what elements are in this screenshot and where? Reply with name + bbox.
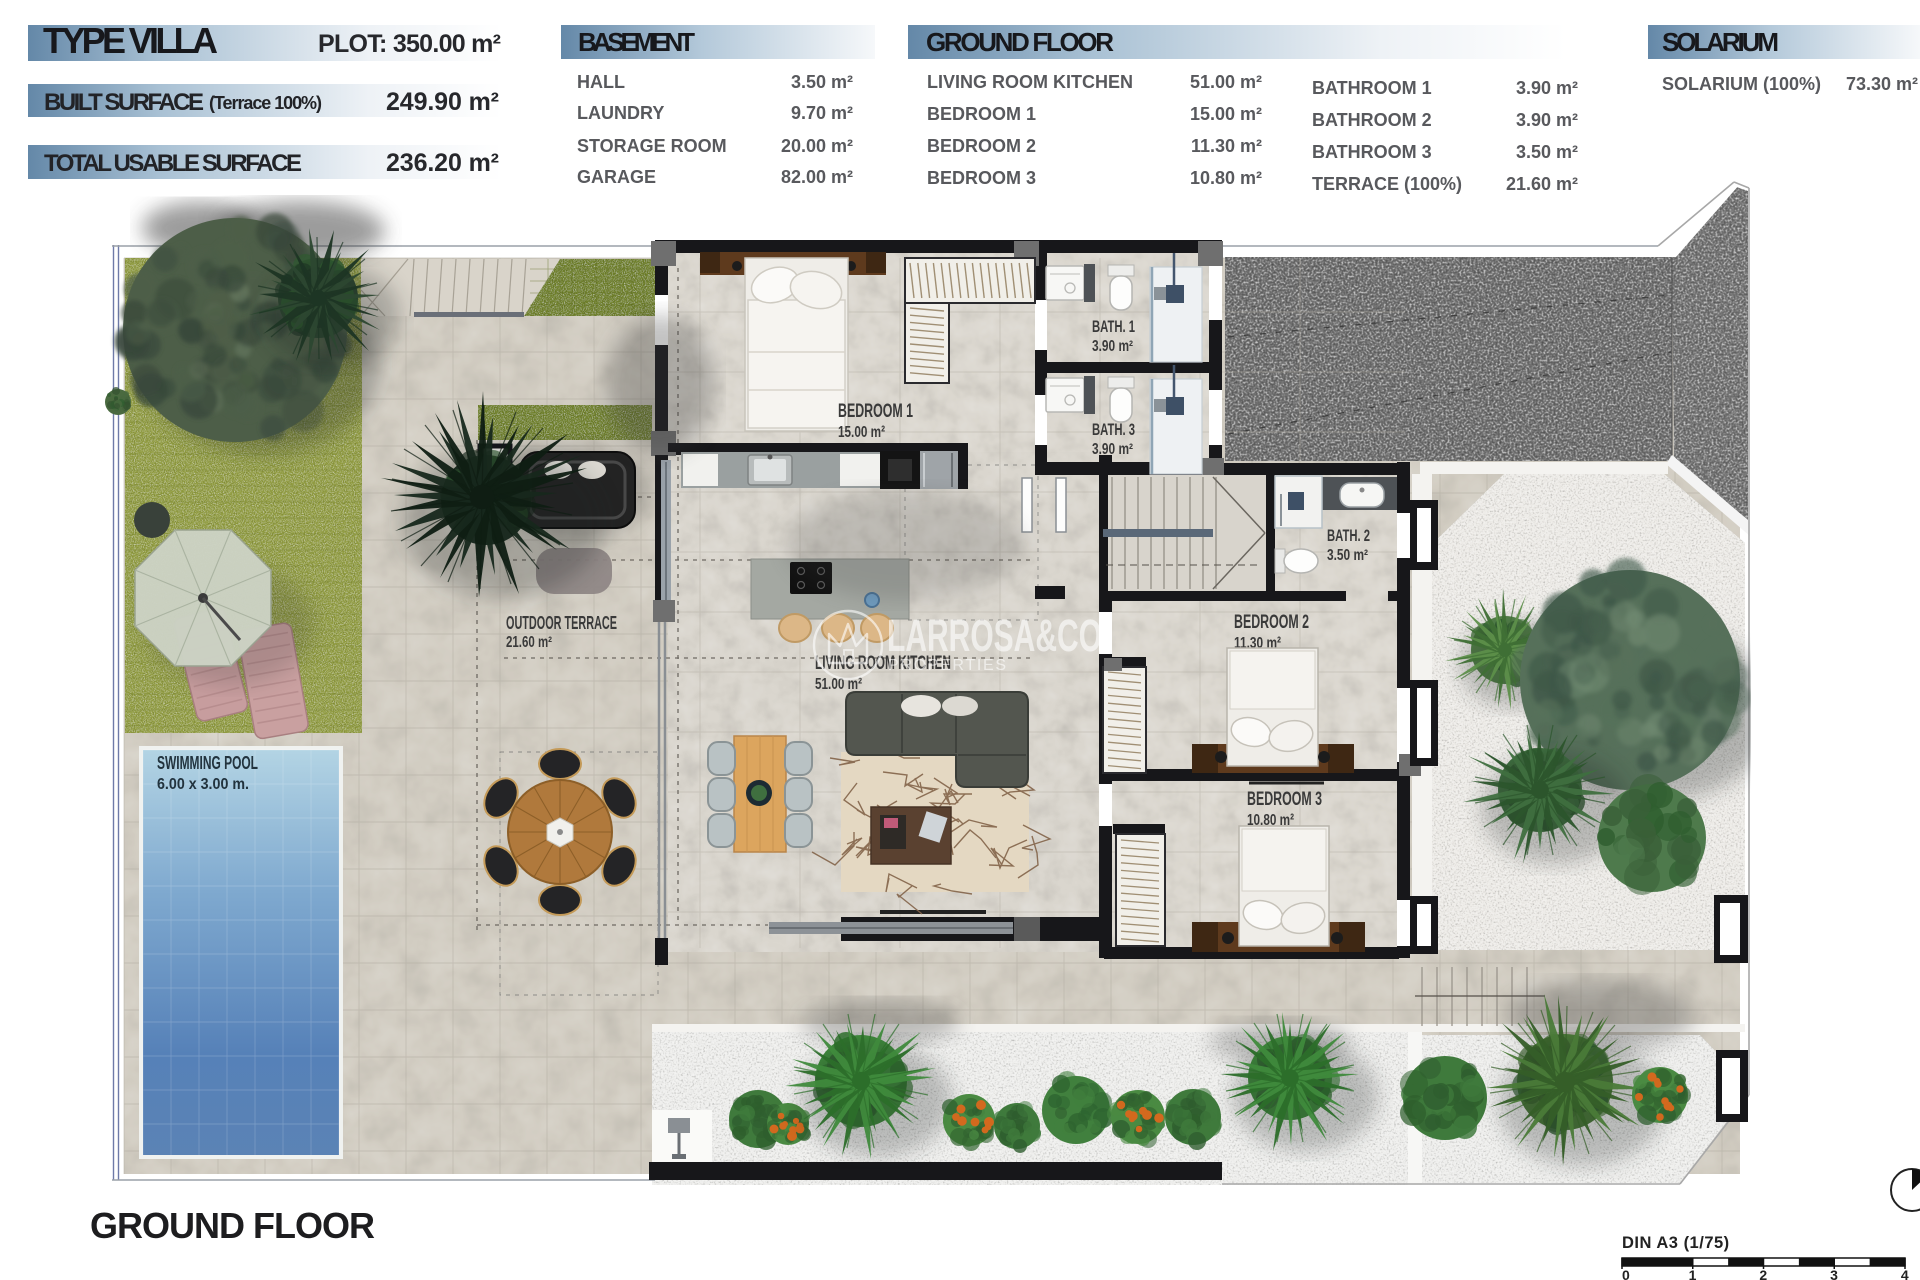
svg-text:3.50 m²: 3.50 m² bbox=[1516, 142, 1578, 162]
svg-text:4: 4 bbox=[1901, 1267, 1909, 1280]
svg-text:BATHROOM 1: BATHROOM 1 bbox=[1312, 78, 1432, 98]
svg-text:LAUNDRY: LAUNDRY bbox=[577, 103, 664, 123]
svg-text:3.50 m²: 3.50 m² bbox=[791, 72, 853, 92]
svg-text:15.00 m²: 15.00 m² bbox=[1190, 104, 1262, 124]
svg-text:3.50 m²: 3.50 m² bbox=[1327, 547, 1368, 564]
svg-text:OUTDOOR TERRACE: OUTDOOR TERRACE bbox=[506, 613, 617, 633]
svg-text:TERRACE (100%): TERRACE (100%) bbox=[1312, 174, 1462, 194]
svg-text:21.60 m²: 21.60 m² bbox=[1506, 174, 1578, 194]
svg-text:21.60 m²: 21.60 m² bbox=[506, 634, 552, 651]
svg-text:GARAGE: GARAGE bbox=[577, 167, 656, 187]
svg-text:PLOT: 350.00 m²: PLOT: 350.00 m² bbox=[318, 30, 501, 58]
svg-text:10.80 m²: 10.80 m² bbox=[1190, 168, 1262, 188]
svg-text:3.90 m²: 3.90 m² bbox=[1516, 110, 1578, 130]
svg-text:STORAGE ROOM: STORAGE ROOM bbox=[577, 136, 727, 156]
svg-text:BEDROOM 2: BEDROOM 2 bbox=[927, 136, 1036, 156]
svg-text:HALL: HALL bbox=[577, 72, 625, 92]
svg-text:BATH. 3: BATH. 3 bbox=[1092, 420, 1135, 439]
svg-text:BUILT SURFACE: BUILT SURFACE bbox=[44, 89, 204, 116]
svg-text:BATH. 2: BATH. 2 bbox=[1327, 526, 1370, 545]
svg-text:TYPE VILLA: TYPE VILLA bbox=[43, 20, 218, 61]
svg-text:BATH. 1: BATH. 1 bbox=[1092, 317, 1135, 336]
svg-text:SOLARIUM: SOLARIUM bbox=[1662, 27, 1779, 57]
svg-text:SOLARIUM (100%): SOLARIUM (100%) bbox=[1662, 74, 1821, 94]
svg-text:2: 2 bbox=[1759, 1267, 1767, 1280]
svg-text:DIN A3 (1/75): DIN A3 (1/75) bbox=[1622, 1234, 1730, 1252]
svg-text:BATHROOM 3: BATHROOM 3 bbox=[1312, 142, 1432, 162]
svg-text:3.90 m²: 3.90 m² bbox=[1092, 338, 1133, 355]
svg-text:(Terrace 100%): (Terrace 100%) bbox=[209, 93, 322, 113]
svg-text:3.90 m²: 3.90 m² bbox=[1516, 78, 1578, 98]
svg-text:BEDROOM 1: BEDROOM 1 bbox=[927, 104, 1036, 124]
svg-text:15.00 m²: 15.00 m² bbox=[838, 424, 885, 441]
svg-text:3.90 m²: 3.90 m² bbox=[1092, 441, 1133, 458]
svg-text:249.90 m²: 249.90 m² bbox=[386, 88, 499, 116]
svg-text:BEDROOM 1: BEDROOM 1 bbox=[838, 401, 913, 422]
svg-text:0: 0 bbox=[1622, 1267, 1630, 1280]
svg-text:20.00 m²: 20.00 m² bbox=[781, 136, 853, 156]
svg-text:TOTAL USABLE SURFACE: TOTAL USABLE SURFACE bbox=[44, 150, 302, 177]
svg-text:BEDROOM 3: BEDROOM 3 bbox=[1247, 789, 1322, 810]
svg-text:LIVING ROOM KITCHEN: LIVING ROOM KITCHEN bbox=[927, 72, 1133, 92]
svg-text:11.30 m²: 11.30 m² bbox=[1191, 136, 1262, 156]
svg-text:3: 3 bbox=[1830, 1267, 1838, 1280]
svg-text:51.00 m²: 51.00 m² bbox=[1190, 72, 1262, 92]
svg-text:PROPERTIES: PROPERTIES bbox=[888, 657, 1010, 674]
svg-text:73.30 m²: 73.30 m² bbox=[1846, 74, 1918, 94]
svg-text:LARROSA&CO: LARROSA&CO bbox=[887, 610, 1102, 661]
svg-text:SWIMMING POOL: SWIMMING POOL bbox=[157, 753, 258, 773]
svg-text:GROUND FLOOR: GROUND FLOOR bbox=[90, 1205, 375, 1246]
svg-text:BATHROOM 2: BATHROOM 2 bbox=[1312, 110, 1432, 130]
svg-text:236.20 m²: 236.20 m² bbox=[386, 149, 499, 177]
svg-text:BEDROOM 2: BEDROOM 2 bbox=[1234, 612, 1309, 633]
svg-text:9.70 m²: 9.70 m² bbox=[791, 103, 853, 123]
svg-text:1: 1 bbox=[1689, 1267, 1697, 1280]
svg-text:GROUND FLOOR: GROUND FLOOR bbox=[926, 27, 1114, 57]
svg-text:BASEMENT: BASEMENT bbox=[578, 27, 695, 57]
svg-text:BEDROOM 3: BEDROOM 3 bbox=[927, 168, 1036, 188]
svg-text:82.00 m²: 82.00 m² bbox=[781, 167, 853, 187]
svg-text:6.00 x 3.00 m.: 6.00 x 3.00 m. bbox=[157, 776, 249, 793]
